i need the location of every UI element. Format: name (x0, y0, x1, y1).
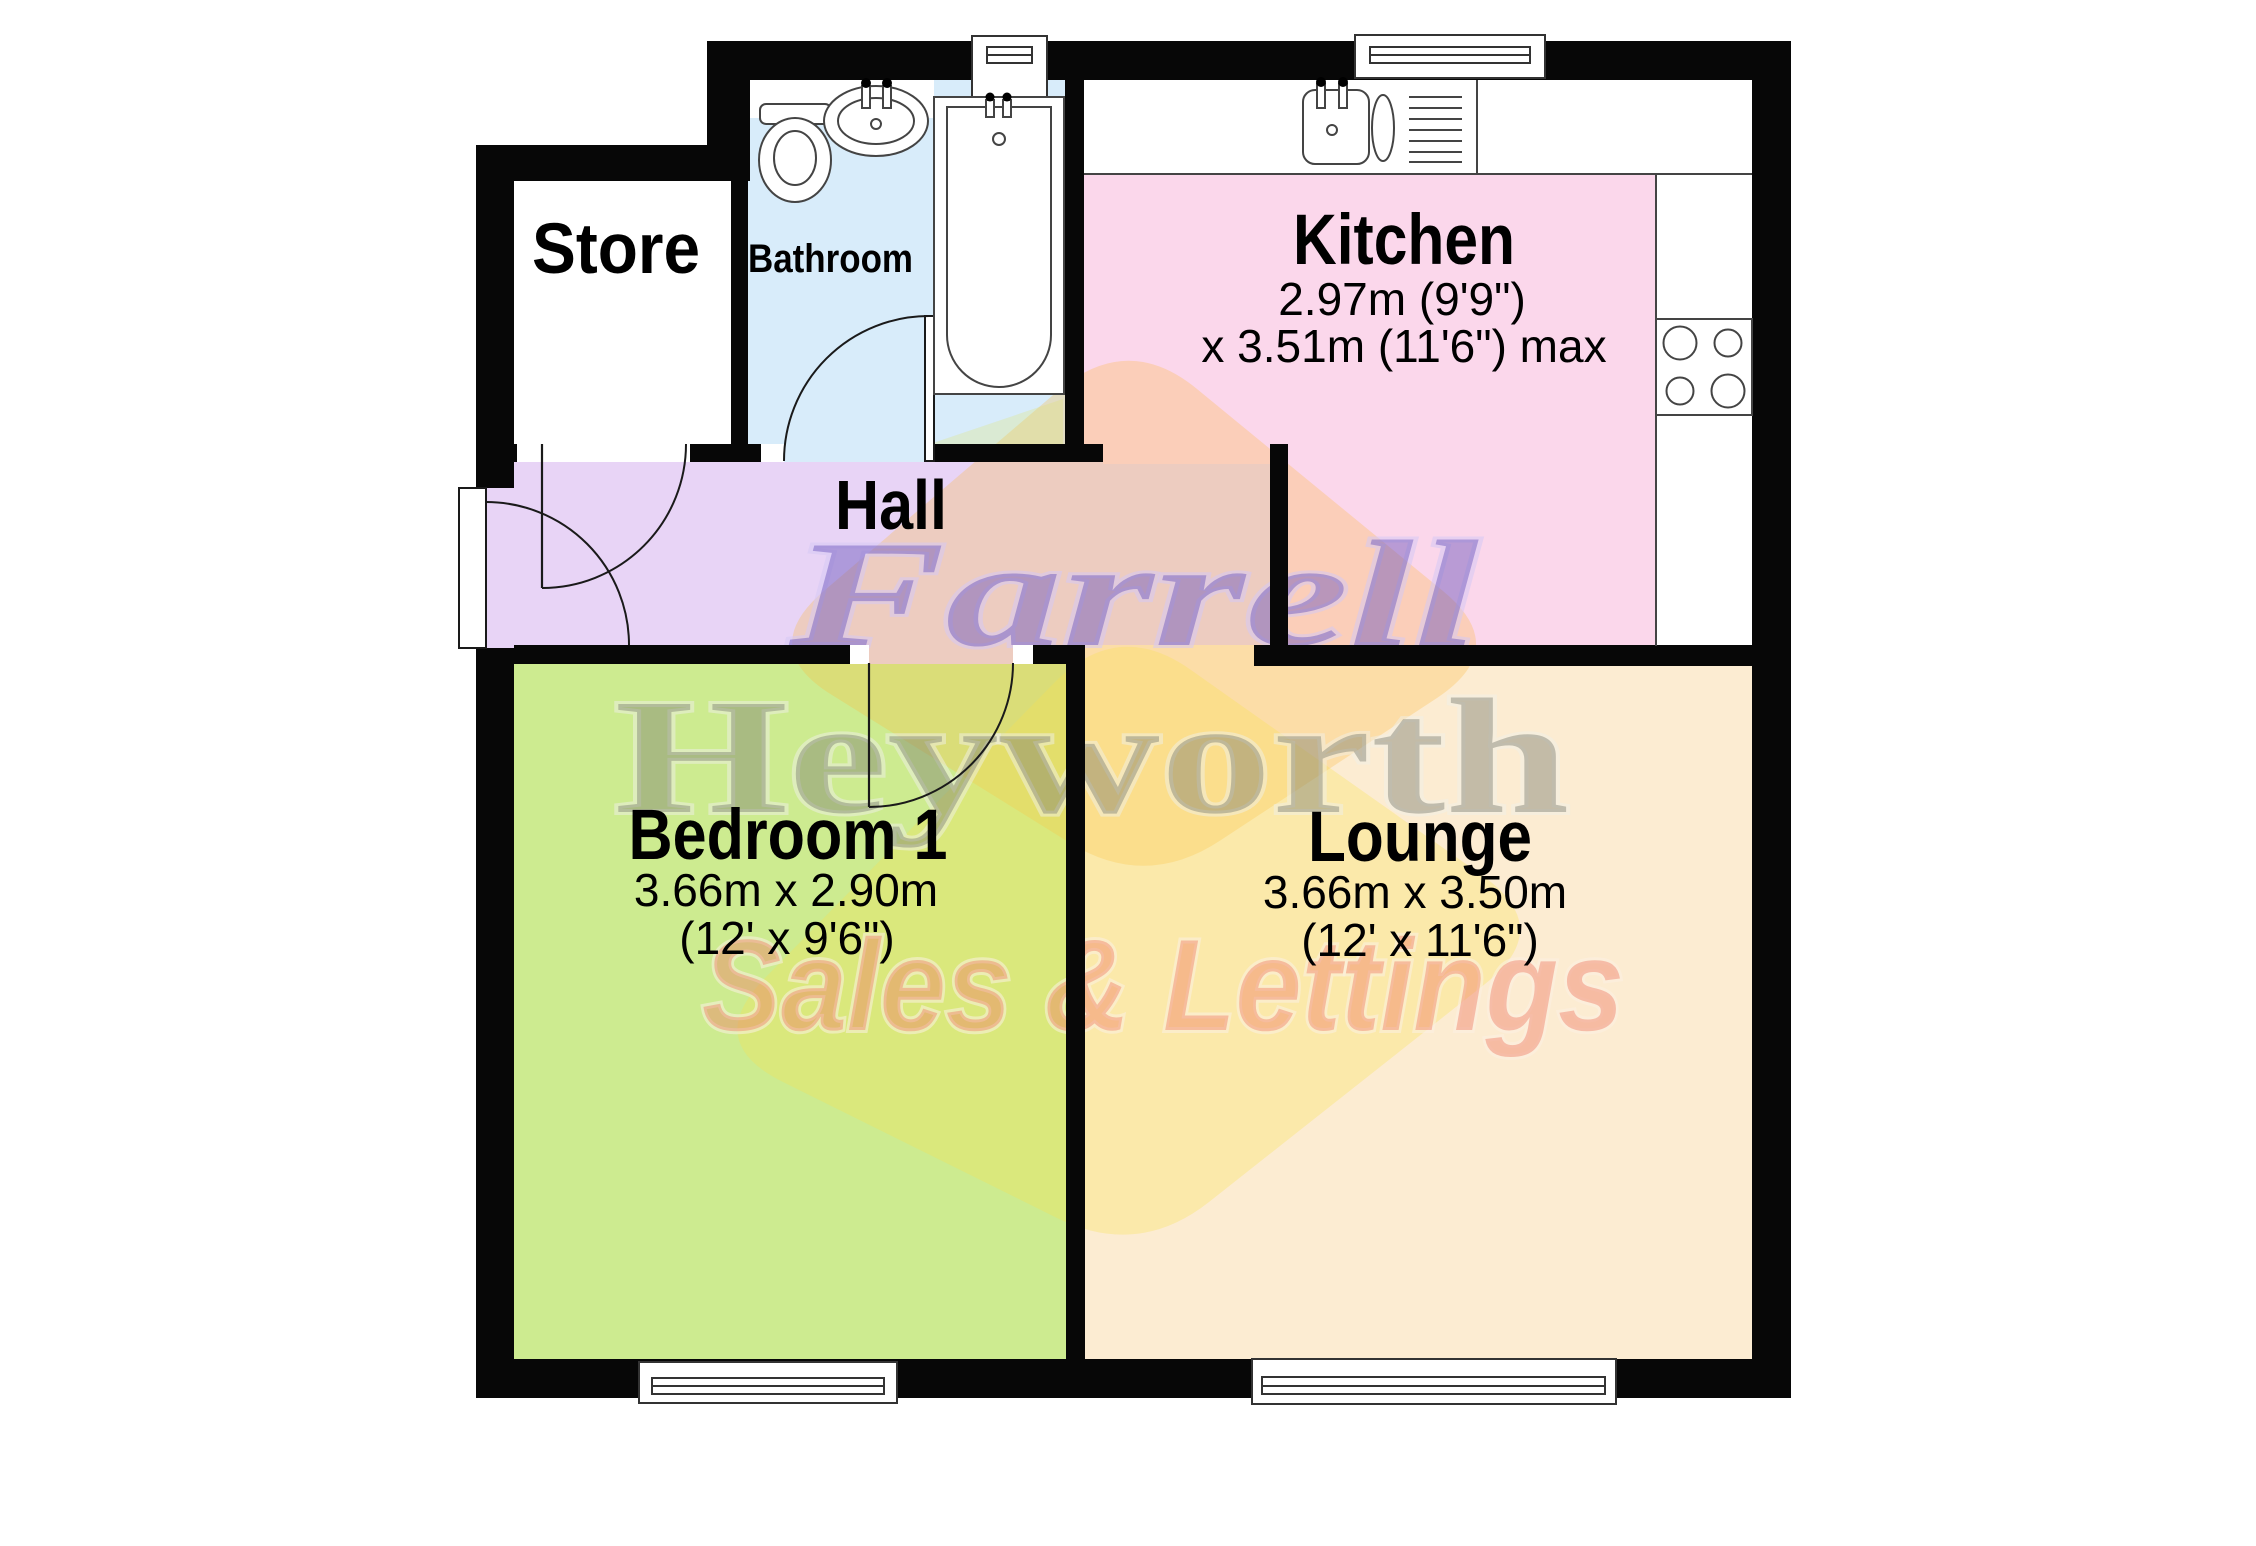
svg-text:Bathroom: Bathroom (748, 237, 913, 281)
svg-text:(12' x 11'6"): (12' x 11'6") (1301, 914, 1539, 966)
svg-text:(12' x 9'6"): (12' x 9'6") (679, 912, 894, 964)
svg-text:2.97m (9'9"): 2.97m (9'9") (1278, 273, 1526, 325)
svg-text:x 3.51m (11'6") max: x 3.51m (11'6") max (1201, 320, 1606, 372)
svg-text:3.66m x 2.90m: 3.66m x 2.90m (634, 864, 938, 916)
svg-text:3.66m x 3.50m: 3.66m x 3.50m (1263, 866, 1567, 918)
svg-text:Store: Store (532, 210, 700, 289)
svg-text:Kitchen: Kitchen (1293, 201, 1515, 280)
svg-text:Hall: Hall (835, 466, 947, 544)
